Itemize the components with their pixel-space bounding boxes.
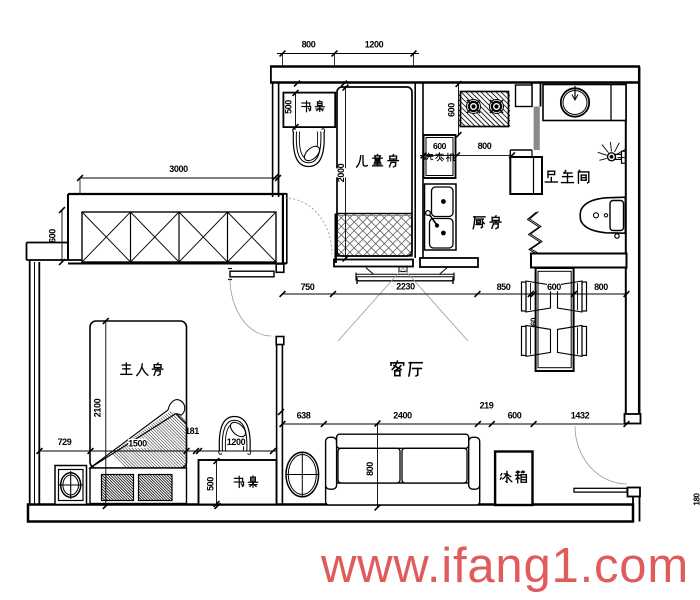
svg-text:638: 638 <box>297 411 311 421</box>
svg-text:850: 850 <box>497 282 511 292</box>
svg-text:219: 219 <box>480 401 494 411</box>
svg-text:60: 60 <box>530 317 539 326</box>
svg-text:729: 729 <box>58 437 72 447</box>
svg-text:2100: 2100 <box>93 398 103 417</box>
svg-text:1500: 1500 <box>128 439 147 449</box>
svg-text:2230: 2230 <box>396 282 415 292</box>
svg-text:2000: 2000 <box>336 163 346 182</box>
svg-text:600: 600 <box>508 411 522 421</box>
svg-text:600: 600 <box>433 141 447 151</box>
svg-text:500: 500 <box>206 477 216 491</box>
svg-text:600: 600 <box>547 282 561 292</box>
svg-text:180: 180 <box>693 492 700 505</box>
svg-text:600: 600 <box>447 103 457 117</box>
svg-text:www.ifang1.com: www.ifang1.com <box>320 539 689 593</box>
svg-text:1432: 1432 <box>571 411 590 421</box>
svg-text:800: 800 <box>478 141 492 151</box>
svg-text:800: 800 <box>594 282 608 292</box>
svg-text:500: 500 <box>284 100 294 114</box>
svg-text:800: 800 <box>365 462 375 476</box>
svg-text:3000: 3000 <box>169 164 188 174</box>
svg-text:1200: 1200 <box>227 437 246 447</box>
svg-text:800: 800 <box>302 40 316 50</box>
svg-text:2400: 2400 <box>393 411 412 421</box>
svg-text:181: 181 <box>185 426 199 436</box>
svg-text:1200: 1200 <box>365 40 384 50</box>
svg-text:600: 600 <box>48 229 58 243</box>
svg-text:750: 750 <box>301 282 315 292</box>
